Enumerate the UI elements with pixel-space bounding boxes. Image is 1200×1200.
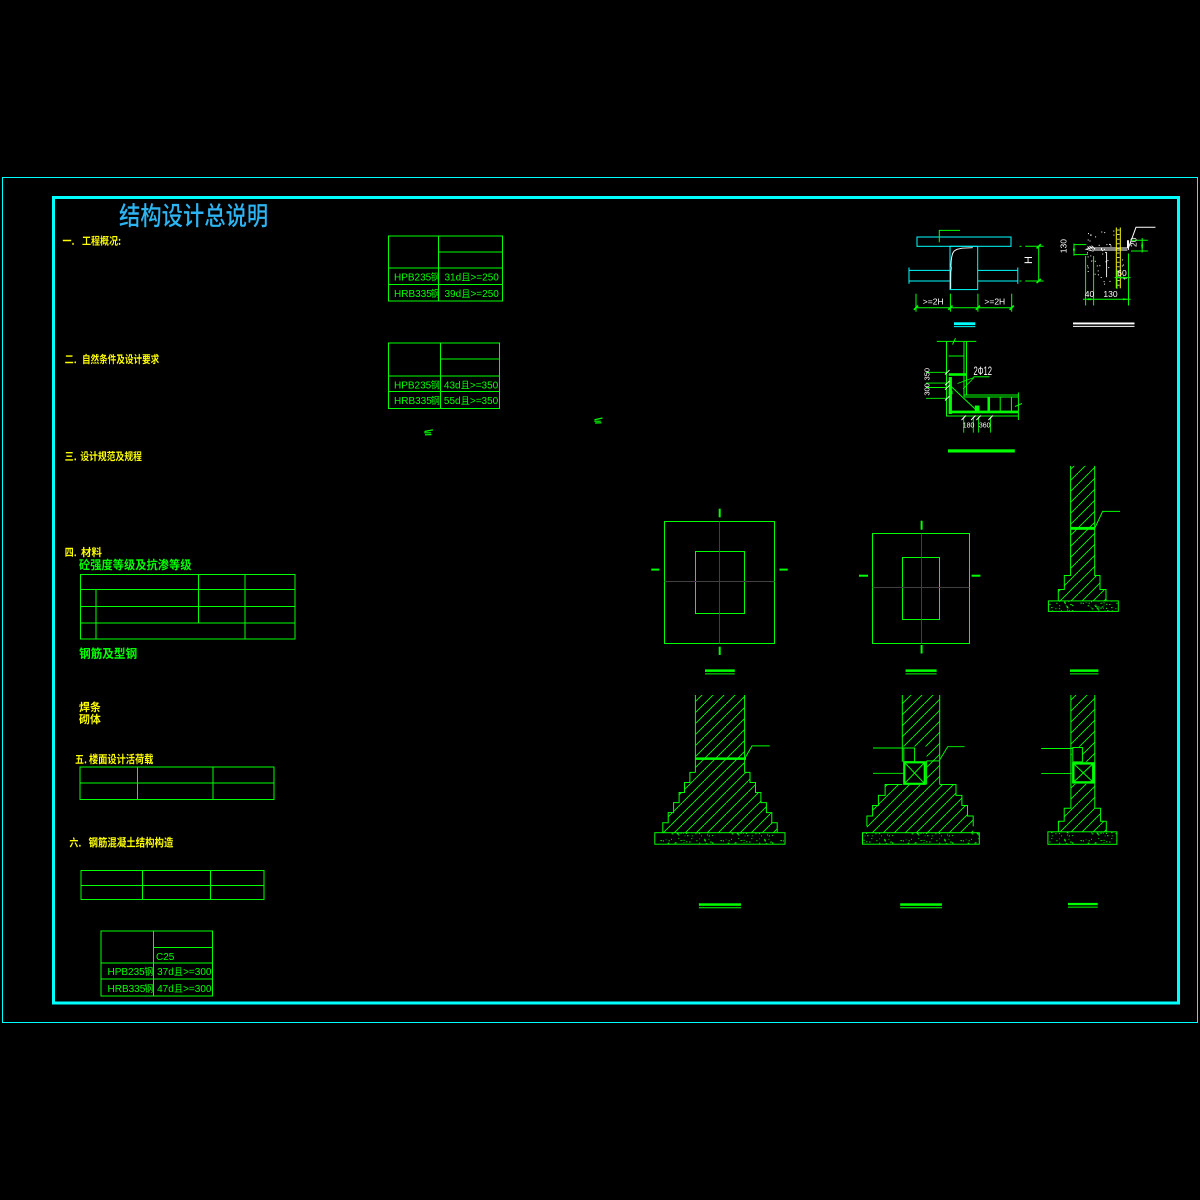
svg-text:>=250: >=250 bbox=[470, 273, 499, 284]
svg-text:HPB235: HPB235 bbox=[394, 381, 432, 392]
svg-text:180: 180 bbox=[963, 422, 975, 429]
svg-text:>=2H: >=2H bbox=[984, 297, 1005, 307]
svg-text:>=300: >=300 bbox=[183, 967, 212, 978]
svg-text:360: 360 bbox=[979, 422, 991, 429]
svg-text:>=2H: >=2H bbox=[923, 297, 944, 307]
svg-text:39d: 39d bbox=[445, 289, 462, 300]
svg-text:55d: 55d bbox=[444, 396, 461, 407]
svg-text:300: 300 bbox=[922, 383, 931, 396]
svg-text:>=250: >=250 bbox=[470, 289, 499, 300]
svg-text:40: 40 bbox=[1085, 289, 1095, 299]
svg-text:130: 130 bbox=[1103, 289, 1117, 299]
svg-text:2Ф12: 2Ф12 bbox=[974, 364, 993, 378]
svg-text:47d: 47d bbox=[157, 984, 174, 995]
svg-text:HPB235: HPB235 bbox=[108, 967, 146, 978]
svg-text:43d: 43d bbox=[444, 381, 461, 392]
svg-text:>=350: >=350 bbox=[470, 396, 499, 407]
svg-text:37d: 37d bbox=[157, 967, 174, 978]
svg-text:C25: C25 bbox=[156, 952, 175, 963]
svg-text:31d: 31d bbox=[445, 273, 462, 284]
svg-text:20: 20 bbox=[1129, 237, 1139, 247]
svg-text:HPB235: HPB235 bbox=[394, 273, 432, 284]
svg-text:HRB335: HRB335 bbox=[394, 289, 432, 300]
svg-text:H: H bbox=[1023, 256, 1035, 264]
svg-text:HRB335: HRB335 bbox=[108, 984, 146, 995]
svg-text:350: 350 bbox=[922, 368, 931, 381]
svg-text:60: 60 bbox=[1117, 268, 1127, 278]
svg-text:>=350: >=350 bbox=[470, 381, 499, 392]
svg-text:HRB335: HRB335 bbox=[394, 396, 432, 407]
svg-text:>=300: >=300 bbox=[183, 984, 212, 995]
svg-text:130: 130 bbox=[1059, 239, 1069, 253]
